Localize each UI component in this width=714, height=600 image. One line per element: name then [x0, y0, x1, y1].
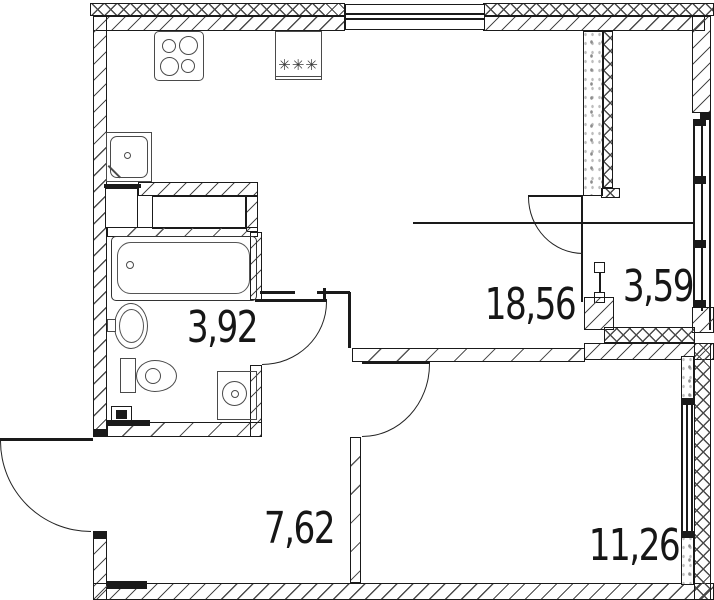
wall-living-bedroom-partition	[352, 348, 585, 362]
loggia-glazing-mullion-3	[693, 240, 706, 248]
zone-line-hallway-vertical	[348, 292, 351, 348]
exterior-wall-right-top	[692, 16, 711, 113]
loggia-glazing-mullion-1	[693, 119, 706, 126]
floor-drain-core	[116, 410, 127, 419]
loggia-glazing-mullion-2	[693, 176, 706, 184]
washbasin-faucet-icon	[107, 319, 116, 332]
room-label-hallway: 7,62	[264, 507, 334, 551]
room-label-bathroom: 3,92	[187, 306, 257, 350]
loggia-wall-stub-bottom-right	[692, 307, 714, 333]
exterior-wall-top-left-outer	[90, 3, 345, 16]
bedroom-window-pier-bottom	[681, 535, 694, 585]
exterior-wall-top-right-inner	[483, 16, 705, 31]
stove-burner-top-right	[179, 36, 198, 55]
bathroom-niche-wall-top	[138, 182, 258, 196]
wall-loggia-bedroom-insulation	[604, 327, 695, 343]
bathroom-door-swing-arc	[262, 302, 327, 365]
entrance-jamb-top	[93, 430, 107, 437]
stove-burner-bottom-left	[160, 57, 179, 76]
washing-machine	[217, 371, 257, 420]
washing-machine-drum-center	[231, 390, 239, 398]
toilet-bowl-inner	[145, 368, 161, 384]
bathtub-inner	[117, 242, 250, 294]
exterior-wall-top-left-inner	[93, 16, 345, 31]
washbasin-inner	[119, 309, 144, 343]
wall-living-loggia-end-cap	[601, 188, 620, 198]
zone-line-hallway-2	[317, 291, 350, 294]
wall-hallway-bedroom-partition	[350, 437, 361, 583]
exterior-wall-top-right-outer	[483, 3, 714, 16]
shaft-box	[105, 188, 138, 228]
bathroom-door-stop	[323, 288, 326, 301]
loggia-glazing-line-mid	[701, 115, 703, 311]
washbasin	[114, 303, 148, 349]
floor-plan: ✳✳✳ 18,56 3,59 3,92 7,62 11,26	[0, 0, 714, 600]
stove	[154, 31, 204, 81]
loggia-wall-stub	[584, 297, 614, 330]
zone-line-living-loggia	[413, 222, 694, 224]
window-top	[345, 4, 485, 30]
window-top-frame-line-1	[345, 13, 485, 15]
bedroom-window-cap-top	[681, 398, 694, 405]
loggia-glazing-mullion-4	[693, 300, 706, 307]
fridge-bottom-line	[276, 76, 321, 78]
kitchen-sink-drain	[124, 152, 131, 159]
room-label-loggia: 3,59	[623, 265, 693, 309]
loggia-door-jamb-block-top	[594, 262, 605, 273]
bathroom-niche	[152, 196, 246, 229]
toilet-bowl	[136, 360, 177, 392]
toilet-tank	[120, 358, 136, 393]
bedroom-window-line-2	[686, 405, 688, 531]
wall-living-loggia-concrete	[583, 31, 603, 196]
zone-line-hallway-1	[260, 291, 295, 294]
stove-burner-bottom-right	[181, 59, 195, 73]
bottom-wall-cap	[107, 581, 147, 589]
kitchen-sink	[106, 132, 152, 182]
bedroom-window-line-1	[681, 405, 683, 531]
bathtub-drain	[126, 261, 134, 269]
entrance-jamb-bottom	[93, 531, 107, 538]
bedroom-door-swing-arc	[362, 364, 430, 437]
bedroom-window-cap-bottom	[681, 531, 694, 538]
bedroom-window-line-3	[691, 405, 693, 531]
loggia-glazing-line-inner	[693, 119, 695, 307]
fridge: ✳✳✳	[275, 31, 322, 80]
exterior-wall-bottom	[93, 583, 714, 600]
bathtub	[111, 236, 257, 301]
room-label-kitchen-living: 18,56	[485, 283, 575, 327]
loggia-door-jamb-line	[599, 273, 601, 292]
entrance-door-swing-arc	[0, 441, 91, 532]
freezer-snowflakes-icon: ✳✳✳	[276, 58, 321, 73]
wall-living-loggia-insulation	[603, 31, 613, 188]
loggia-door-swing-arc	[528, 197, 583, 254]
exterior-wall-right-lower-outer	[694, 343, 711, 600]
stove-burner-top-left	[162, 39, 176, 53]
loggia-glazing-line-outer	[709, 115, 711, 330]
window-top-frame-line-2	[345, 18, 485, 20]
bedroom-window-pier-top	[681, 356, 694, 402]
room-label-bedroom: 11,26	[589, 524, 679, 568]
